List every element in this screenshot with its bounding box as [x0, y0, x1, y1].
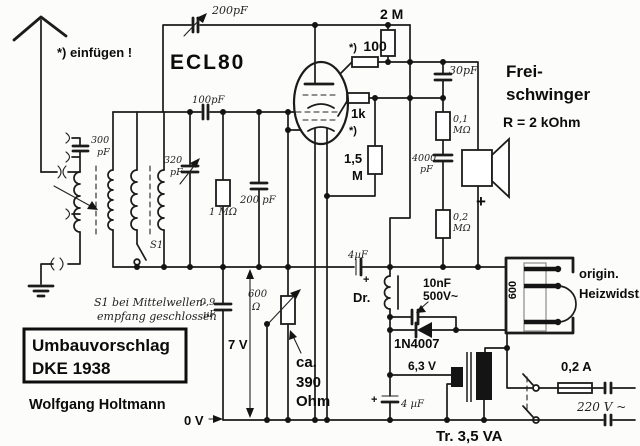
- ground-symbol: [29, 286, 53, 296]
- title-box: Umbauvorschlag DKE 1938: [24, 329, 186, 382]
- cap-10nf: [390, 302, 456, 330]
- cap-4uf-psu-plus: +: [371, 394, 377, 406]
- cap-200pf-top-label: 200pF: [211, 4, 248, 17]
- transformer-label: Tr. 3,5 VA: [436, 428, 503, 445]
- speaker-plus-label: +: [476, 192, 486, 211]
- speaker-name-line1: Frei-: [506, 62, 543, 81]
- chassis-bus: [113, 259, 506, 275]
- cap-200pf-mid: [251, 112, 267, 267]
- rheostat-600-label: 600 Ω: [248, 284, 272, 313]
- cap-10nf-label: 10nF 500V~: [423, 274, 458, 303]
- author-label: Wolfgang Holtmann: [29, 397, 166, 413]
- resistor-02m-label: 0,2 MΩ: [452, 207, 473, 234]
- cap-4uf-bus-plus: +: [363, 274, 369, 286]
- speaker-impedance-label: R = 2 kOhm: [503, 114, 580, 130]
- resistor-1mohm: [216, 112, 230, 267]
- grid-leak-line: [288, 112, 301, 267]
- zero-volt-rail: [209, 415, 635, 425]
- circuit-schematic: ECL80 *) einfügen ! 200pF 2 M *) 100 30p…: [0, 0, 640, 446]
- heater-resistor-value: 600: [507, 281, 519, 299]
- mains-switch: [523, 374, 539, 423]
- resistor-2m-label: 2 M: [380, 6, 403, 22]
- cap-320pf-label: 320 pF: [164, 150, 187, 178]
- antenna-symbol: [14, 17, 80, 178]
- antenna-coil-and-cap-300pf: [41, 133, 88, 284]
- voltage-7v-label: 7 V: [228, 337, 248, 352]
- cap-30pf-label: 30pF: [449, 64, 478, 77]
- resistor-100-label: *) 100: [349, 38, 387, 55]
- schematic-page: ECL80 *) einfügen ! 200pF 2 M *) 100 30p…: [0, 0, 640, 446]
- cap-4000pf-label: 4000 pF: [411, 148, 441, 175]
- note-390ohm-label: ca. 390 Ohm: [296, 354, 330, 410]
- switch-s1: [134, 244, 146, 267]
- output-network: [434, 98, 452, 267]
- fuse-symbol: [539, 383, 635, 393]
- fuse-rating-label: 0,2 A: [561, 359, 592, 374]
- switch-s1-label: S1: [150, 240, 163, 251]
- switch-s1-note: S1 bei Mittelwellen- empfang geschlossen: [94, 293, 217, 323]
- cap-200pf-mid-label: 200 pF: [239, 195, 277, 206]
- mains-voltage-label: 220 V ~: [576, 400, 626, 414]
- resistor-01m-label: 0,1 MΩ: [452, 109, 473, 136]
- resistor-1k-label: 1k: [351, 106, 366, 121]
- resistor-15m-value: 1,5: [344, 151, 362, 166]
- plate-rail-pentode: [327, 93, 443, 196]
- resistor-15m-unit: M: [352, 168, 363, 183]
- choke-label: Dr.: [353, 290, 370, 305]
- heater-resistor-note: origin. Heizwidst.: [579, 265, 640, 301]
- tube-type-label: ECL80: [170, 51, 245, 74]
- insert-note-label: *) einfügen !: [57, 45, 132, 60]
- trimmer-320pf: [180, 112, 200, 267]
- voltage-63v-label: 6,3 V: [408, 359, 436, 373]
- cap-100pf-label: 100pF: [192, 95, 225, 106]
- grid-rail: [113, 105, 295, 119]
- cap-4uf-bus-label: 4µF: [347, 250, 369, 261]
- tube-ecl80: [294, 62, 348, 144]
- resistor-1k-note: *): [349, 125, 357, 137]
- zero-volt-label: 0 V: [184, 413, 204, 428]
- speaker-name-line2: schwinger: [506, 85, 590, 104]
- title-line1: Umbauvorschlag: [32, 336, 170, 355]
- title-line2: DKE 1938: [32, 359, 110, 378]
- note-390-arrow: [289, 330, 301, 353]
- resistor-1m-label: 1 MΩ: [209, 207, 237, 218]
- cap-4uf-psu-label: 4 µF: [400, 399, 425, 410]
- cap-300pf-label: 300 pF: [91, 130, 114, 158]
- diode-label: 1N4007: [394, 336, 440, 351]
